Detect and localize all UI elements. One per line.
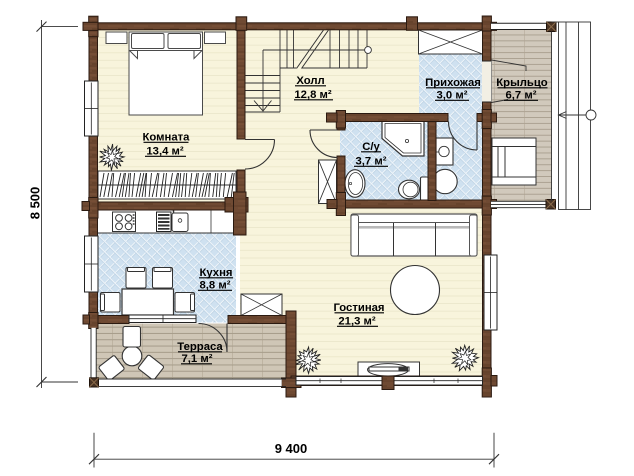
svg-text:Кухня: Кухня: [199, 267, 232, 279]
svg-text:13,4 м²: 13,4 м²: [146, 146, 183, 158]
svg-text:12,8 м²: 12,8 м²: [294, 89, 331, 101]
svg-text:С/у: С/у: [362, 141, 380, 153]
svg-text:6,7 м²: 6,7 м²: [506, 90, 537, 102]
svg-text:3,7 м²: 3,7 м²: [356, 156, 387, 168]
svg-text:8,8 м²: 8,8 м²: [200, 280, 231, 292]
svg-text:Комната: Комната: [143, 132, 191, 144]
svg-text:7,1 м²: 7,1 м²: [182, 353, 213, 365]
svg-text:21,3 м²: 21,3 м²: [338, 316, 375, 328]
svg-text:9 400: 9 400: [275, 441, 308, 456]
svg-text:Терраса: Терраса: [177, 341, 223, 353]
svg-text:8 500: 8 500: [28, 187, 43, 220]
svg-text:Гостиная: Гостиная: [333, 302, 384, 314]
svg-text:Крыльцо: Крыльцо: [496, 77, 548, 89]
svg-text:Прихожая: Прихожая: [425, 77, 481, 89]
svg-text:3,0 м²: 3,0 м²: [437, 90, 468, 102]
svg-text:Холл: Холл: [296, 75, 324, 87]
